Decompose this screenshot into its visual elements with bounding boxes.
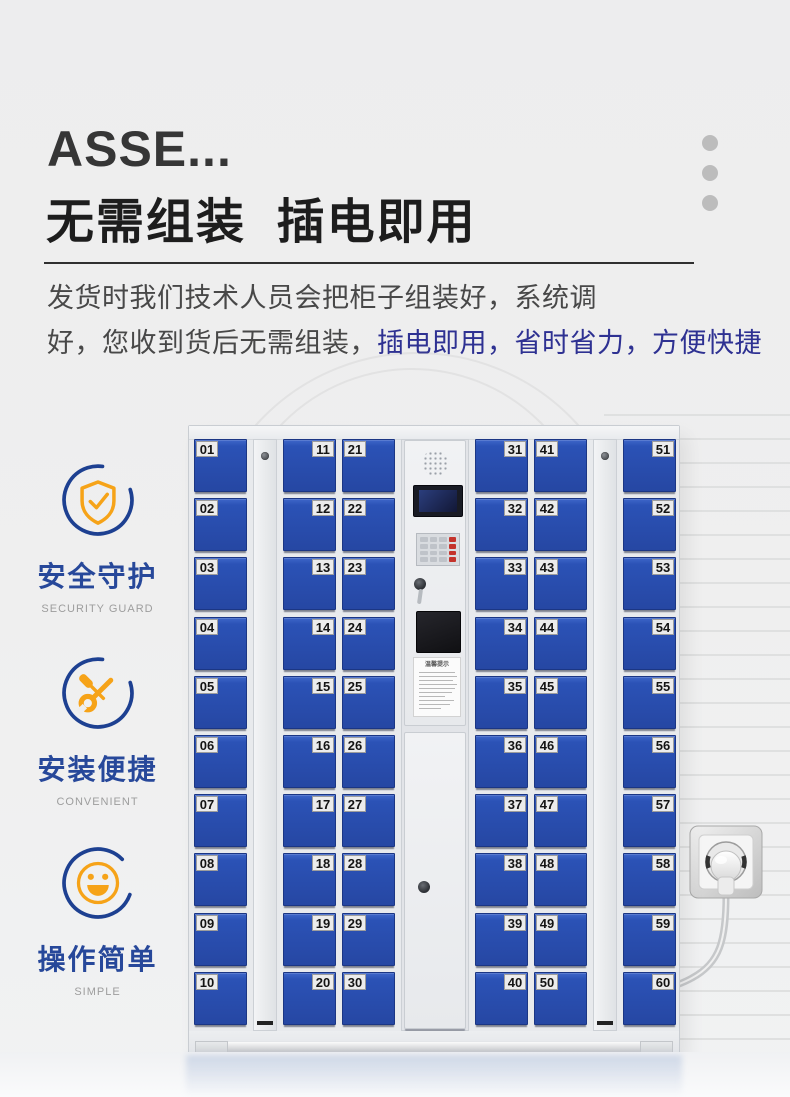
door-number: 20	[312, 974, 334, 990]
brand-title: ASSE...	[47, 120, 232, 178]
locker-door-38: 38	[475, 853, 528, 906]
door-number: 07	[196, 796, 218, 812]
locker-column-doors: 21222324252627282930	[342, 439, 395, 1031]
door-number: 54	[652, 619, 674, 635]
keypad-key	[420, 537, 428, 542]
locker-door-35: 35	[475, 676, 528, 729]
door-number: 50	[536, 974, 558, 990]
locker-door-55: 55	[623, 676, 676, 729]
locker-door-16: 16	[283, 735, 336, 788]
door-number: 02	[196, 500, 218, 516]
locker-columns: 0102030405060708091011121314151617181920…	[189, 439, 679, 1031]
keypad-key	[430, 551, 438, 556]
door-number: 19	[312, 915, 334, 931]
door-number: 17	[312, 796, 334, 812]
keypad-key	[420, 551, 428, 556]
feature-title: 操作简单	[25, 938, 170, 978]
locker-door-52: 52	[623, 498, 676, 551]
locker-door-40: 40	[475, 972, 528, 1025]
divider	[44, 262, 694, 264]
locker-column-control: 温馨提示	[401, 439, 469, 1031]
keypad-key-red	[449, 557, 457, 562]
sticker-text-line	[419, 708, 441, 709]
shield-check-icon	[60, 525, 136, 542]
door-number: 34	[504, 619, 526, 635]
feature-title: 安全守护	[25, 555, 170, 595]
door-number: 23	[344, 559, 366, 575]
locker-door-41: 41	[534, 439, 587, 492]
locker-cabinet: 0102030405060708091011121314151617181920…	[188, 425, 680, 1055]
door-number: 46	[536, 737, 558, 753]
door-number: 56	[652, 737, 674, 753]
locker-door-06: 06	[194, 735, 247, 788]
tools-icon	[60, 718, 136, 735]
sticker-title: 温馨提示	[418, 662, 456, 669]
keypad-key	[420, 544, 428, 549]
key-icon	[417, 589, 423, 604]
locker-door-27: 27	[342, 794, 395, 847]
door-number: 42	[536, 500, 558, 516]
door-number: 36	[504, 737, 526, 753]
feature-install: 安装便捷 CONVENIENT	[25, 655, 170, 808]
door-number: 57	[652, 796, 674, 812]
door-number: 12	[312, 500, 334, 516]
door-number: 28	[344, 855, 366, 871]
center-door-lock-icon	[418, 881, 430, 893]
smiley-icon	[60, 908, 136, 925]
locker-door-10: 10	[194, 972, 247, 1025]
door-number: 15	[312, 678, 334, 694]
locker-door-46: 46	[534, 735, 587, 788]
locker-door-12: 12	[283, 498, 336, 551]
control-panel: 温馨提示	[404, 440, 466, 726]
locker-column-doors: 31323334353637383940	[475, 439, 528, 1031]
keypad-key	[420, 557, 428, 562]
locker-column-doors: 11121314151617181920	[283, 439, 336, 1031]
locker-door-08: 08	[194, 853, 247, 906]
door-number: 24	[344, 619, 366, 635]
locker-door-30: 30	[342, 972, 395, 1025]
feature-easy: 操作简单 SIMPLE	[25, 845, 170, 998]
door-number: 41	[536, 441, 558, 457]
door-number: 45	[536, 678, 558, 694]
locker-door-15: 15	[283, 676, 336, 729]
door-number: 60	[652, 974, 674, 990]
keypad-key	[430, 544, 438, 549]
door-number: 26	[344, 737, 366, 753]
locker-door-21: 21	[342, 439, 395, 492]
filler-slot	[257, 1021, 273, 1025]
locker-door-14: 14	[283, 617, 336, 670]
locker-door-28: 28	[342, 853, 395, 906]
locker-door-59: 59	[623, 913, 676, 966]
locker-door-11: 11	[283, 439, 336, 492]
locker-door-49: 49	[534, 913, 587, 966]
card-reader-window	[416, 611, 461, 653]
description-line1: 发货时我们技术人员会把柜子组装好，系统调	[47, 283, 597, 313]
locker-door-09: 09	[194, 913, 247, 966]
feature-title: 安装便捷	[25, 748, 170, 788]
locker-door-37: 37	[475, 794, 528, 847]
locker-door-02: 02	[194, 498, 247, 551]
locker-door-44: 44	[534, 617, 587, 670]
cabinet-base	[204, 1042, 664, 1051]
locker-door-31: 31	[475, 439, 528, 492]
door-number: 47	[536, 796, 558, 812]
locker-column-doors: 51525354555657585960	[623, 439, 676, 1031]
floor-reflection	[186, 1055, 682, 1097]
page-title: 无需组装 插电即用	[46, 182, 477, 252]
door-number: 11	[312, 441, 334, 457]
locker-door-04: 04	[194, 617, 247, 670]
info-sticker: 温馨提示	[413, 657, 461, 717]
door-number: 49	[536, 915, 558, 931]
locker-door-36: 36	[475, 735, 528, 788]
locker-door-58: 58	[623, 853, 676, 906]
locker-door-03: 03	[194, 557, 247, 610]
keypad-key-red	[449, 544, 457, 549]
door-number: 10	[196, 974, 218, 990]
sticker-text-line	[419, 704, 450, 705]
locker-column-filler	[593, 439, 617, 1031]
keypad-key	[430, 557, 438, 562]
description-line2-dark: 好，您收到货后无需组装，	[47, 328, 377, 358]
door-number: 35	[504, 678, 526, 694]
locker-door-34: 34	[475, 617, 528, 670]
door-number: 01	[196, 441, 218, 457]
sticker-text-line	[419, 680, 453, 681]
sticker-text-line	[419, 700, 454, 701]
locker-door-51: 51	[623, 439, 676, 492]
door-number: 33	[504, 559, 526, 575]
sticker-text-line	[419, 696, 445, 697]
door-number: 25	[344, 678, 366, 694]
door-number: 38	[504, 855, 526, 871]
locker-door-17: 17	[283, 794, 336, 847]
sticker-text-line	[419, 676, 457, 677]
locker-door-39: 39	[475, 913, 528, 966]
door-number: 53	[652, 559, 674, 575]
door-number: 44	[536, 619, 558, 635]
screw-icon	[601, 452, 609, 460]
sticker-text-line	[419, 684, 457, 685]
keypad-key	[439, 557, 447, 562]
locker-door-43: 43	[534, 557, 587, 610]
feature-subtitle: SECURITY GUARD	[25, 603, 170, 615]
sticker-text-line	[419, 692, 452, 693]
center-door	[404, 732, 466, 1029]
door-number: 32	[504, 500, 526, 516]
locker-door-29: 29	[342, 913, 395, 966]
locker-door-42: 42	[534, 498, 587, 551]
door-number: 30	[344, 974, 366, 990]
display-screen	[413, 485, 463, 517]
door-number: 55	[652, 678, 674, 694]
locker-column-doors: 01020304050607080910	[194, 439, 247, 1031]
door-number: 18	[312, 855, 334, 871]
sticker-text-line	[419, 672, 455, 673]
screw-icon	[261, 452, 269, 460]
locker-door-13: 13	[283, 557, 336, 610]
door-number: 58	[652, 855, 674, 871]
door-number: 48	[536, 855, 558, 871]
locker-column-doors: 41424344454647484950	[534, 439, 587, 1031]
door-number: 08	[196, 855, 218, 871]
door-number: 37	[504, 796, 526, 812]
door-number: 27	[344, 796, 366, 812]
locker-door-07: 07	[194, 794, 247, 847]
door-number: 16	[312, 737, 334, 753]
locker-door-26: 26	[342, 735, 395, 788]
door-number: 21	[344, 441, 366, 457]
feature-subtitle: CONVENIENT	[25, 796, 170, 808]
locker-door-32: 32	[475, 498, 528, 551]
locker-door-57: 57	[623, 794, 676, 847]
keypad-key	[439, 551, 447, 556]
keypad-key-red	[449, 551, 457, 556]
keypad-key-red	[449, 537, 457, 542]
door-number: 05	[196, 678, 218, 694]
sticker-text-line	[419, 688, 455, 689]
door-number: 39	[504, 915, 526, 931]
filler-slot	[597, 1021, 613, 1025]
door-number: 13	[312, 559, 334, 575]
door-number: 22	[344, 500, 366, 516]
locker-door-56: 56	[623, 735, 676, 788]
locker-door-60: 60	[623, 972, 676, 1025]
locker-door-45: 45	[534, 676, 587, 729]
locker-door-53: 53	[623, 557, 676, 610]
locker-door-48: 48	[534, 853, 587, 906]
door-number: 06	[196, 737, 218, 753]
locker-column-filler	[253, 439, 277, 1031]
locker-door-23: 23	[342, 557, 395, 610]
door-number: 04	[196, 619, 218, 635]
feature-security: 安全守护 SECURITY GUARD	[25, 462, 170, 615]
locker-door-24: 24	[342, 617, 395, 670]
door-number: 09	[196, 915, 218, 931]
locker-door-19: 19	[283, 913, 336, 966]
locker-door-01: 01	[194, 439, 247, 492]
locker-door-18: 18	[283, 853, 336, 906]
door-number: 59	[652, 915, 674, 931]
product-detail-page: ASSE... 无需组装 插电即用 发货时我们技术人员会把柜子组装好，系统调 好…	[0, 0, 790, 1097]
door-number: 52	[652, 500, 674, 516]
locker-door-50: 50	[534, 972, 587, 1025]
door-number: 29	[344, 915, 366, 931]
locker-door-05: 05	[194, 676, 247, 729]
keypad	[416, 533, 460, 566]
door-number: 40	[504, 974, 526, 990]
locker-door-22: 22	[342, 498, 395, 551]
door-number: 31	[504, 441, 526, 457]
locker-door-47: 47	[534, 794, 587, 847]
locker-door-25: 25	[342, 676, 395, 729]
locker-door-33: 33	[475, 557, 528, 610]
door-number: 14	[312, 619, 334, 635]
keypad-key	[430, 537, 438, 542]
door-number: 51	[652, 441, 674, 457]
speaker-grille-icon	[422, 450, 448, 476]
door-number: 03	[196, 559, 218, 575]
locker-door-20: 20	[283, 972, 336, 1025]
locker-door-54: 54	[623, 617, 676, 670]
decorative-dots	[702, 135, 718, 225]
cabinet-top-frame	[189, 426, 679, 440]
keypad-key	[439, 537, 447, 542]
door-number: 43	[536, 559, 558, 575]
feature-subtitle: SIMPLE	[25, 986, 170, 998]
keypad-key	[439, 544, 447, 549]
